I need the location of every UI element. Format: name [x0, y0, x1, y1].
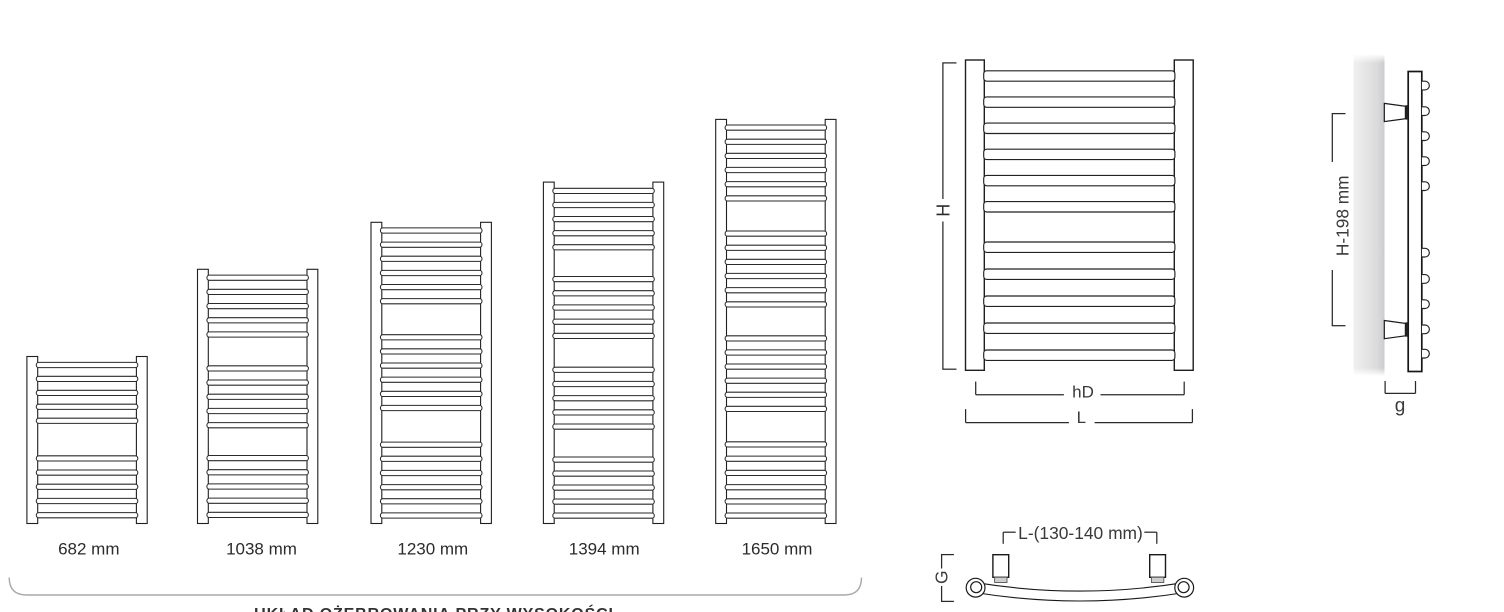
svg-text:1394 mm: 1394 mm: [569, 540, 640, 559]
svg-text:1230 mm: 1230 mm: [397, 540, 468, 559]
svg-text:H: H: [934, 204, 954, 217]
svg-text:hD: hD: [1072, 383, 1094, 402]
svg-text:1038 mm: 1038 mm: [226, 540, 297, 559]
svg-text:g: g: [1395, 396, 1406, 417]
svg-text:UKŁAD OŻEBROWANIA PRZY WYSOKOŚ: UKŁAD OŻEBROWANIA PRZY WYSOKOŚCI: [254, 604, 614, 612]
svg-text:1650 mm: 1650 mm: [742, 540, 813, 559]
svg-text:G: G: [932, 570, 952, 584]
svg-text:H-198 mm: H-198 mm: [1332, 175, 1352, 256]
svg-text:L: L: [1077, 408, 1086, 427]
svg-text:L-(130-140 mm): L-(130-140 mm): [1018, 523, 1143, 543]
svg-text:682 mm: 682 mm: [58, 540, 119, 559]
